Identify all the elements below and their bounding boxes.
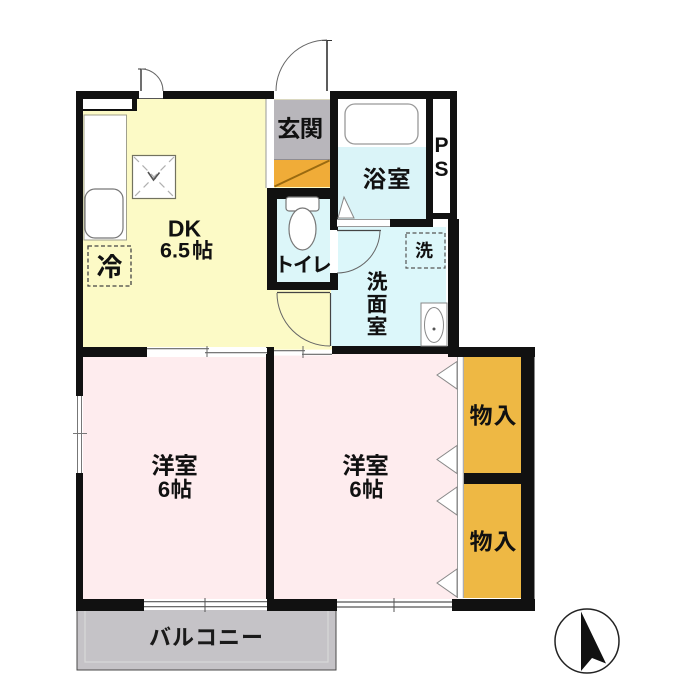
svg-text:P: P xyxy=(434,134,448,157)
svg-text:6: 6 xyxy=(158,477,170,502)
svg-text:6: 6 xyxy=(349,477,361,502)
svg-text:S: S xyxy=(434,158,448,181)
svg-text:6.5: 6.5 xyxy=(160,239,190,263)
